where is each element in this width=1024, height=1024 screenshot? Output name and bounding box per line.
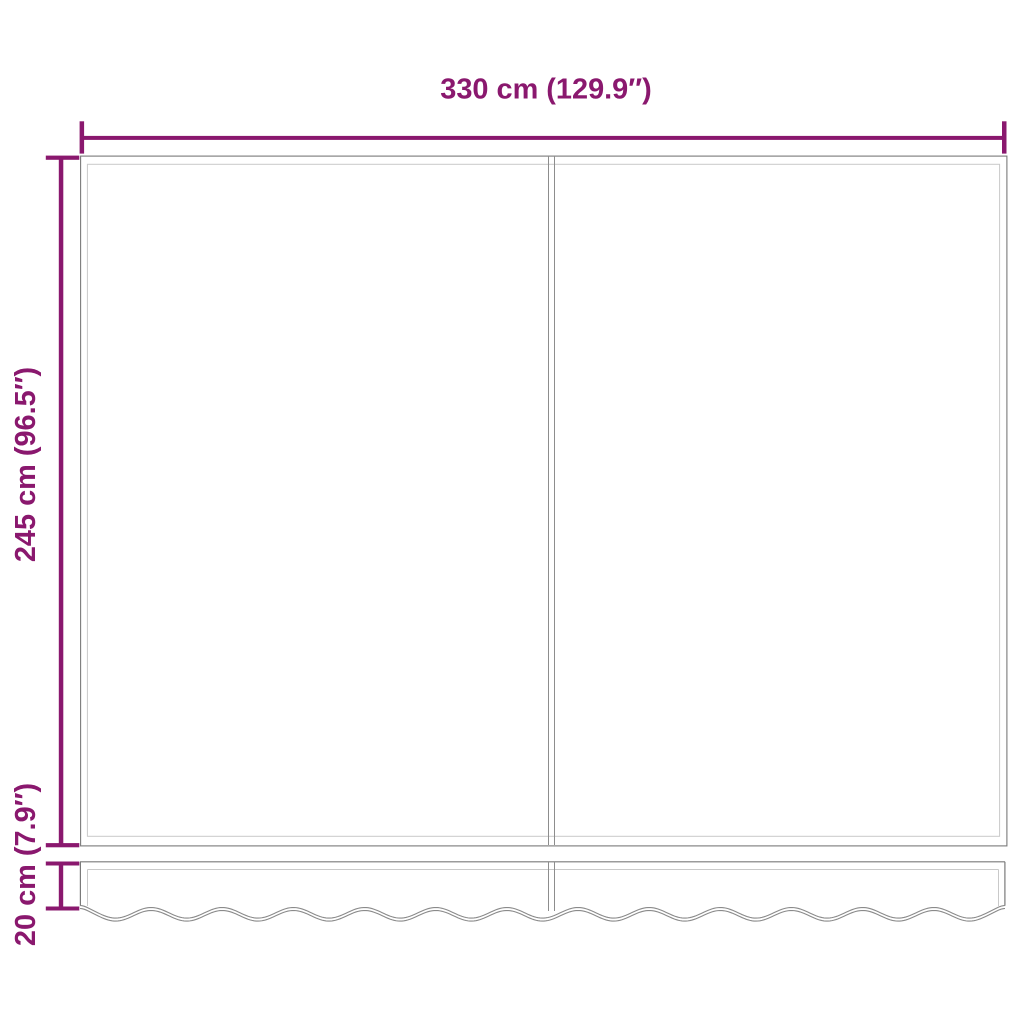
svg-text:245 cm (96.5″): 245 cm (96.5″) xyxy=(10,367,42,562)
svg-text:330 cm (129.9″): 330 cm (129.9″) xyxy=(440,74,651,106)
svg-text:20 cm (7.9″): 20 cm (7.9″) xyxy=(10,783,42,946)
